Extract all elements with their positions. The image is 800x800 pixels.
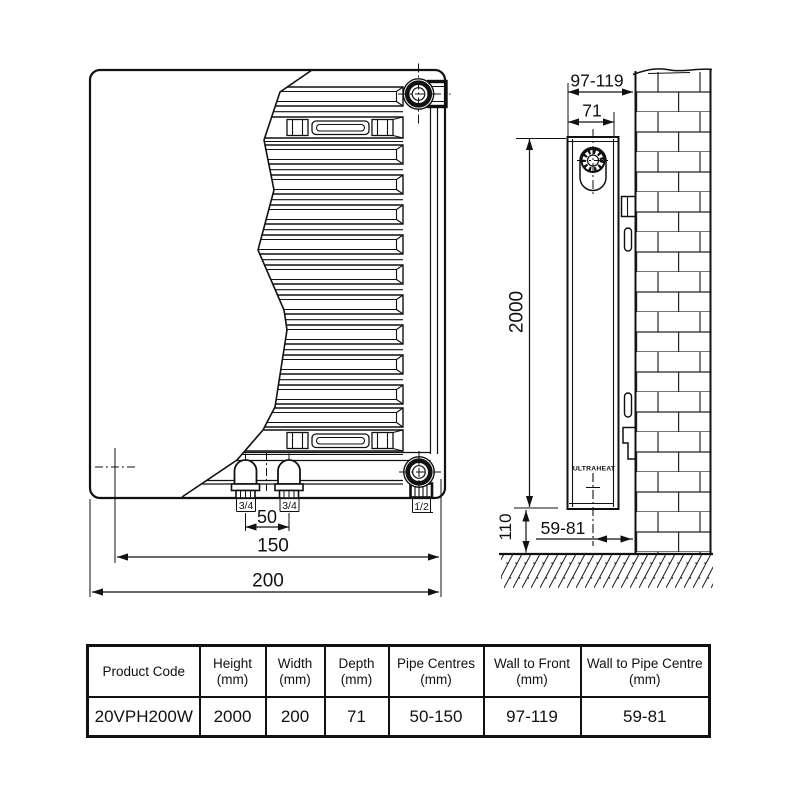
header-wall-to-pipe-centre: Wall to Pipe Centre (mm) bbox=[581, 646, 710, 698]
header-wall-to-front: Wall to Front (mm) bbox=[484, 646, 581, 698]
header-unit: (mm) bbox=[203, 672, 263, 688]
dim-depth: 71 bbox=[582, 101, 601, 121]
dim-vent-size: 1/2 bbox=[414, 501, 429, 513]
spec-table-header-row: Product Code Height (mm) Width (mm) Dept… bbox=[88, 646, 710, 698]
header-label: Wall to Pipe Centre bbox=[587, 656, 703, 671]
header-label: Width bbox=[278, 656, 313, 671]
cell-width: 200 bbox=[266, 697, 325, 737]
header-depth: Depth (mm) bbox=[325, 646, 389, 698]
cell-product-code: 20VPH200W bbox=[88, 697, 200, 737]
header-label: Depth bbox=[338, 656, 374, 671]
header-label: Pipe Centres bbox=[397, 656, 475, 671]
header-pipe-centres: Pipe Centres (mm) bbox=[389, 646, 484, 698]
dim-wall-to-front: 97-119 bbox=[570, 71, 623, 91]
dim-pipe-span: 150 bbox=[257, 536, 289, 557]
cell-height: 2000 bbox=[200, 697, 266, 737]
dim-pipe-centres: 50 bbox=[257, 507, 277, 527]
header-product-code: Product Code bbox=[88, 646, 200, 698]
header-label: Wall to Front bbox=[494, 656, 570, 671]
wall-brackets bbox=[622, 197, 636, 460]
dim-height: 2000 bbox=[507, 291, 528, 333]
front-view: 3/4 3/4 1/2 50 150 200 bbox=[90, 64, 451, 598]
radiator-technical-drawing: 3/4 3/4 1/2 50 150 200 bbox=[0, 0, 800, 630]
dim-pipe-size-left: 3/4 bbox=[239, 500, 254, 512]
dim-floor-clearance: 110 bbox=[496, 513, 515, 540]
header-unit: (mm) bbox=[392, 672, 481, 688]
dim-wall-to-pipe: 59-81 bbox=[541, 518, 586, 538]
header-unit: (mm) bbox=[328, 672, 386, 688]
floor bbox=[499, 554, 713, 588]
side-panel: ULTRAHEAT bbox=[568, 129, 619, 546]
front-dimension-labels: 3/4 3/4 1/2 50 150 200 bbox=[239, 500, 429, 592]
header-label: Height bbox=[213, 656, 252, 671]
header-width: Width (mm) bbox=[266, 646, 325, 698]
dim-pipe-size-right: 3/4 bbox=[282, 500, 297, 512]
cell-depth: 71 bbox=[325, 697, 389, 737]
dim-width: 200 bbox=[252, 571, 284, 592]
cell-wall-to-front: 97-119 bbox=[484, 697, 581, 737]
header-height: Height (mm) bbox=[200, 646, 266, 698]
header-label: Product Code bbox=[102, 664, 185, 679]
header-unit: (mm) bbox=[487, 672, 578, 688]
side-view: ULTRAHEAT bbox=[496, 69, 713, 589]
cell-pipe-centres: 50-150 bbox=[389, 697, 484, 737]
spec-table: Product Code Height (mm) Width (mm) Dept… bbox=[86, 644, 711, 738]
header-unit: (mm) bbox=[269, 672, 322, 688]
cell-wall-to-pipe-centre: 59-81 bbox=[581, 697, 710, 737]
header-unit: (mm) bbox=[584, 672, 707, 688]
brand-label: ULTRAHEAT bbox=[573, 466, 616, 473]
wall bbox=[633, 69, 712, 555]
page: { "front_view": { "pipe_size_left": "3/4… bbox=[0, 0, 800, 800]
spec-table-data-row: 20VPH200W 2000 200 71 50-150 97-119 59-8… bbox=[88, 697, 710, 737]
